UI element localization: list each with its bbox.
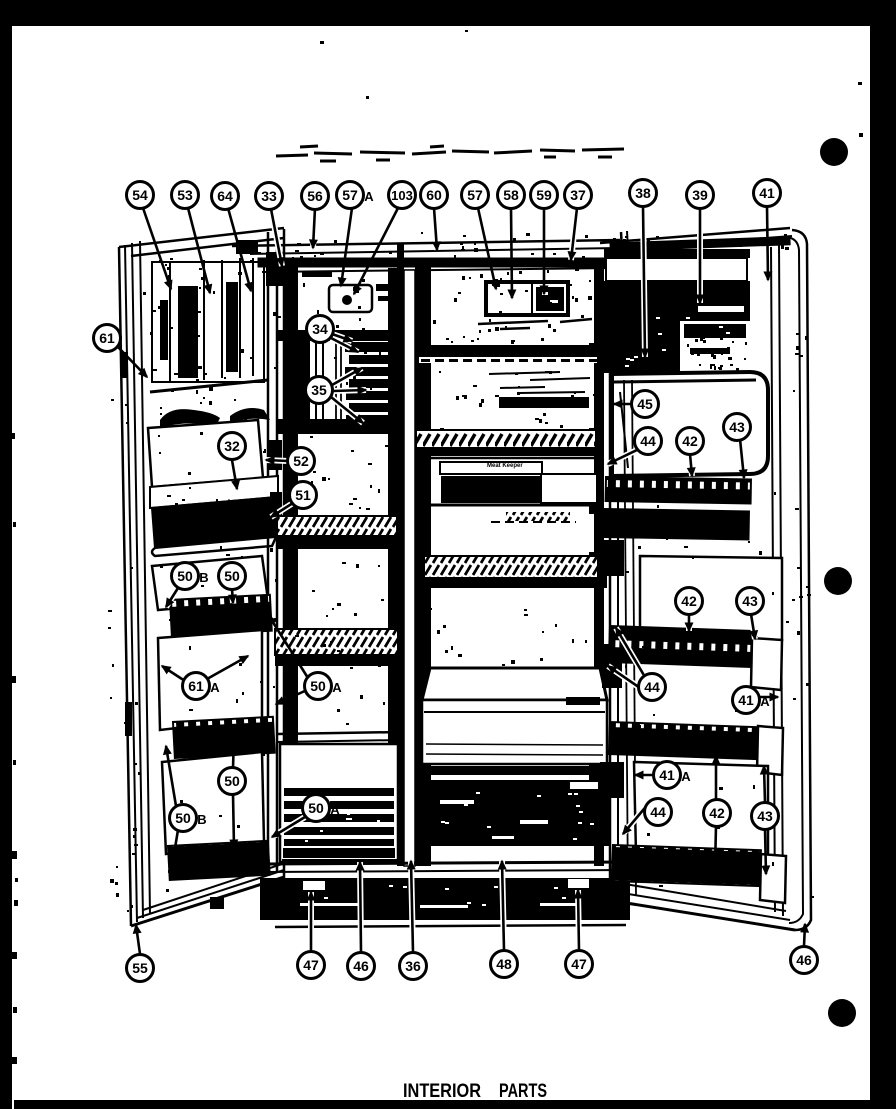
svg-text:50: 50: [177, 568, 193, 584]
svg-text:44: 44: [640, 433, 656, 449]
svg-text:A: A: [210, 680, 220, 695]
svg-text:50: 50: [175, 810, 191, 826]
svg-text:43: 43: [742, 593, 758, 609]
svg-text:42: 42: [709, 805, 725, 821]
svg-text:59: 59: [536, 187, 552, 203]
svg-text:B: B: [197, 812, 206, 827]
svg-text:45: 45: [637, 396, 653, 412]
svg-text:A: A: [330, 802, 340, 817]
svg-text:50: 50: [224, 568, 240, 584]
svg-text:42: 42: [682, 433, 698, 449]
svg-text:44: 44: [644, 679, 660, 695]
svg-text:50: 50: [310, 678, 326, 694]
svg-text:35: 35: [311, 382, 327, 398]
svg-text:41: 41: [738, 692, 754, 708]
svg-text:32: 32: [224, 438, 240, 454]
svg-text:37: 37: [570, 187, 586, 203]
svg-text:55: 55: [132, 960, 148, 976]
svg-text:PARTS: PARTS: [499, 1081, 547, 1102]
svg-text:46: 46: [353, 958, 369, 974]
svg-text:43: 43: [729, 419, 745, 435]
svg-text:36: 36: [405, 958, 421, 974]
svg-text:INTERIOR: INTERIOR: [403, 1081, 481, 1102]
svg-text:53: 53: [177, 187, 193, 203]
svg-text:52: 52: [293, 453, 309, 469]
svg-text:A: A: [364, 189, 374, 204]
svg-text:34: 34: [312, 321, 328, 337]
svg-text:103: 103: [391, 188, 413, 203]
svg-text:41: 41: [659, 767, 675, 783]
svg-text:61: 61: [188, 678, 204, 694]
svg-text:58: 58: [503, 187, 519, 203]
svg-text:46: 46: [796, 952, 812, 968]
svg-text:57: 57: [467, 187, 483, 203]
svg-text:44: 44: [650, 804, 666, 820]
svg-text:41: 41: [759, 185, 775, 201]
svg-text:33: 33: [261, 188, 277, 204]
svg-text:B: B: [199, 570, 208, 585]
svg-text:50: 50: [224, 773, 240, 789]
svg-text:42: 42: [681, 593, 697, 609]
svg-text:57: 57: [342, 187, 358, 203]
svg-text:56: 56: [307, 188, 323, 204]
svg-text:A: A: [760, 694, 770, 709]
svg-text:51: 51: [295, 487, 311, 503]
svg-text:64: 64: [217, 188, 233, 204]
svg-text:A: A: [681, 769, 691, 784]
svg-text:Ice Storage: Ice Storage: [228, 499, 266, 506]
svg-text:54: 54: [132, 187, 148, 203]
svg-text:60: 60: [426, 187, 442, 203]
svg-text:47: 47: [571, 956, 587, 972]
svg-text:A: A: [332, 680, 342, 695]
svg-text:61: 61: [99, 330, 115, 346]
svg-text:38: 38: [635, 185, 651, 201]
svg-text:39: 39: [692, 187, 708, 203]
svg-text:48: 48: [496, 956, 512, 972]
svg-text:43: 43: [757, 808, 773, 824]
svg-text:47: 47: [303, 957, 319, 973]
svg-text:50: 50: [308, 800, 324, 816]
svg-text:Meat Keeper: Meat Keeper: [487, 463, 523, 469]
